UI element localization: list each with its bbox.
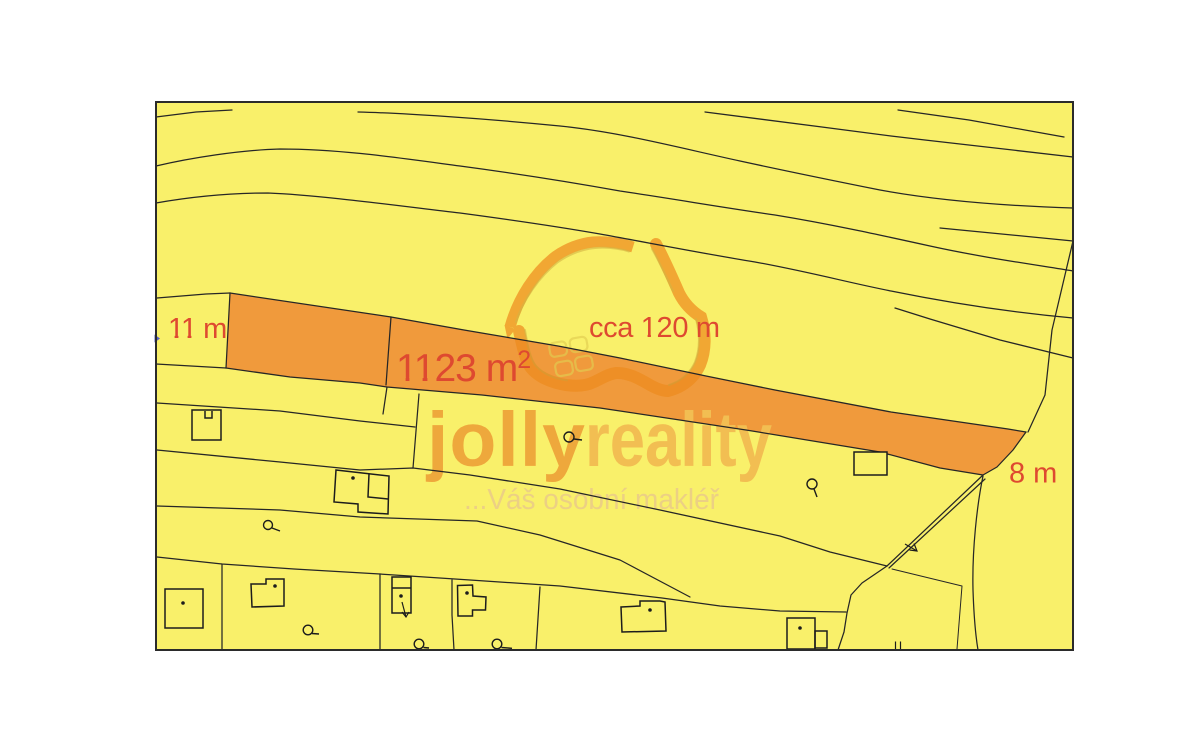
- svg-text:...Váš osobní makléř: ...Váš osobní makléř: [464, 484, 720, 516]
- svg-text:11 m: 11 m: [168, 313, 226, 345]
- svg-text:jolly: jolly: [425, 397, 585, 483]
- svg-text:1123 m2: 1123 m2: [396, 346, 530, 390]
- svg-text:cca 120 m: cca 120 m: [589, 312, 720, 344]
- svg-text:8 m: 8 m: [1009, 458, 1057, 490]
